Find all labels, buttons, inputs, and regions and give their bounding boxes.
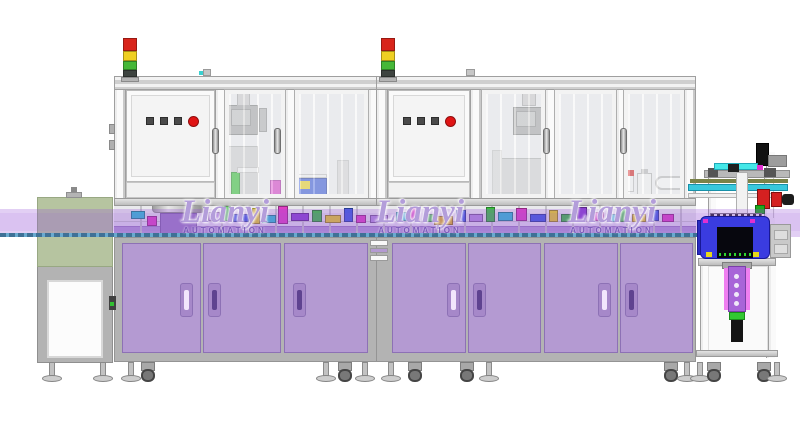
- marking-foot-left: [706, 252, 712, 257]
- hmi-screen-1: [231, 109, 251, 126]
- caster-wheel: [460, 369, 474, 382]
- side-bracket-slot2: [774, 244, 788, 254]
- beam-sensor-1-led: [199, 71, 203, 75]
- caster-bracket: [664, 362, 678, 371]
- caster-wheel: [707, 369, 721, 382]
- automation-line-render: Lianyi AUTOMATION Lianyi AUTOMATION Lian…: [0, 0, 800, 438]
- infeed-stand-panel: [47, 280, 103, 358]
- outfeed-stand-bottom: [696, 350, 778, 357]
- infeed-cover-cap: [66, 192, 82, 198]
- motor-knob: [782, 194, 794, 205]
- actuator-green-block: [729, 312, 745, 320]
- actuator-rail-right: [746, 268, 750, 310]
- control-panel-1-lower: [126, 182, 215, 198]
- leveling-foot-stem: [323, 362, 329, 376]
- actuator-cylinder: [731, 320, 743, 342]
- cabinet1-body: [114, 237, 380, 362]
- test-tube-cap: [627, 170, 634, 176]
- outfeed-leg-right: [768, 266, 776, 352]
- signal-tower-yellow: [123, 51, 137, 61]
- interior-cabinet-2: [495, 158, 545, 198]
- shelf-block: [728, 164, 739, 172]
- leveling-foot-base: [479, 375, 499, 382]
- infeed-cover-knob: [71, 187, 77, 192]
- shelf-dot: [757, 165, 763, 170]
- signal-tower-red: [381, 38, 395, 51]
- leveling-foot-base: [121, 375, 141, 382]
- machine1-top-beam: [114, 76, 380, 90]
- leveling-foot-stem: [697, 362, 703, 376]
- caster-bracket: [141, 362, 155, 371]
- caster-bracket: [338, 362, 352, 371]
- side-bracket: [770, 224, 791, 258]
- leveling-foot-stem: [49, 362, 55, 376]
- caster-bracket: [757, 362, 771, 371]
- beam-sensor-1: [203, 69, 211, 76]
- hopper-1: [237, 92, 250, 106]
- machine2-mid-rail: [376, 198, 696, 206]
- mini-gantry: [237, 167, 259, 173]
- leveling-foot-stem: [684, 362, 690, 376]
- beam-sensor-2: [466, 69, 475, 76]
- machine2-top-beam: [376, 76, 696, 90]
- hmi-keys-2: [545, 109, 553, 131]
- camera-bracket: [768, 155, 787, 167]
- actuator-column: [728, 266, 746, 312]
- control-panel-2-lower: [388, 182, 470, 198]
- caster-wheel: [338, 369, 352, 382]
- leveling-foot-stem: [388, 362, 394, 376]
- coupling-red-b: [771, 192, 782, 207]
- infeed-latch-led: [110, 302, 114, 306]
- leveling-foot-stem: [128, 362, 134, 376]
- machine1-mid-rail: [114, 198, 380, 206]
- side-bracket-slot: [774, 230, 788, 240]
- cabinet2-body: [376, 237, 696, 362]
- marking-dot-left: [703, 219, 708, 223]
- hmi-keys-1: [259, 108, 267, 132]
- press-unit-tool: [300, 181, 310, 189]
- leveling-foot-base: [355, 375, 375, 382]
- leveling-foot-base: [767, 375, 787, 382]
- caster-wheel: [757, 369, 771, 382]
- marking-opening-leds: [719, 253, 751, 256]
- caster-bracket: [408, 362, 422, 371]
- hinge-tab-top: [109, 124, 115, 134]
- leveling-foot-stem: [362, 362, 368, 376]
- marking-station-housing: [700, 216, 770, 259]
- control-panel-2: [388, 90, 470, 182]
- highlight-band-core: [0, 213, 800, 231]
- green-tower: [231, 172, 240, 196]
- z-slide: [736, 172, 748, 214]
- silhouette-1: [337, 160, 349, 196]
- gantry-cap-right: [764, 168, 776, 177]
- leveling-foot-base: [93, 375, 113, 382]
- outfeed-leg-left: [700, 266, 708, 352]
- leveling-foot-stem: [100, 362, 106, 376]
- magenta-unit: [270, 180, 281, 196]
- caster-wheel: [408, 369, 422, 382]
- hinge-tab-bottom: [109, 140, 115, 150]
- control-panel-1: [126, 90, 215, 182]
- reagent-bottle-cap: [641, 169, 648, 174]
- silhouette-2: [492, 150, 502, 196]
- hmi-screen-2: [516, 111, 536, 127]
- caster-bracket: [707, 362, 721, 371]
- caster-bracket: [460, 362, 474, 371]
- signal-tower-green: [123, 61, 137, 70]
- pipe-loop: [655, 176, 688, 190]
- leveling-foot-stem: [774, 362, 780, 376]
- signal-tower-red: [123, 38, 137, 51]
- hopper-2: [522, 92, 536, 106]
- leveling-foot-base: [316, 375, 336, 382]
- leveling-foot-stem: [486, 362, 492, 376]
- signal-tower-yellow: [381, 51, 395, 61]
- leveling-foot-base: [42, 375, 62, 382]
- leveling-foot-base: [677, 375, 697, 382]
- marking-dot-right: [750, 219, 755, 223]
- marking-foot-right: [753, 252, 759, 257]
- leveling-foot-base: [381, 375, 401, 382]
- signal-tower-green: [381, 61, 395, 70]
- reagent-bottle: [637, 173, 652, 195]
- caster-wheel: [664, 369, 678, 382]
- caster-wheel: [141, 369, 155, 382]
- leveling-foot-base: [690, 375, 710, 382]
